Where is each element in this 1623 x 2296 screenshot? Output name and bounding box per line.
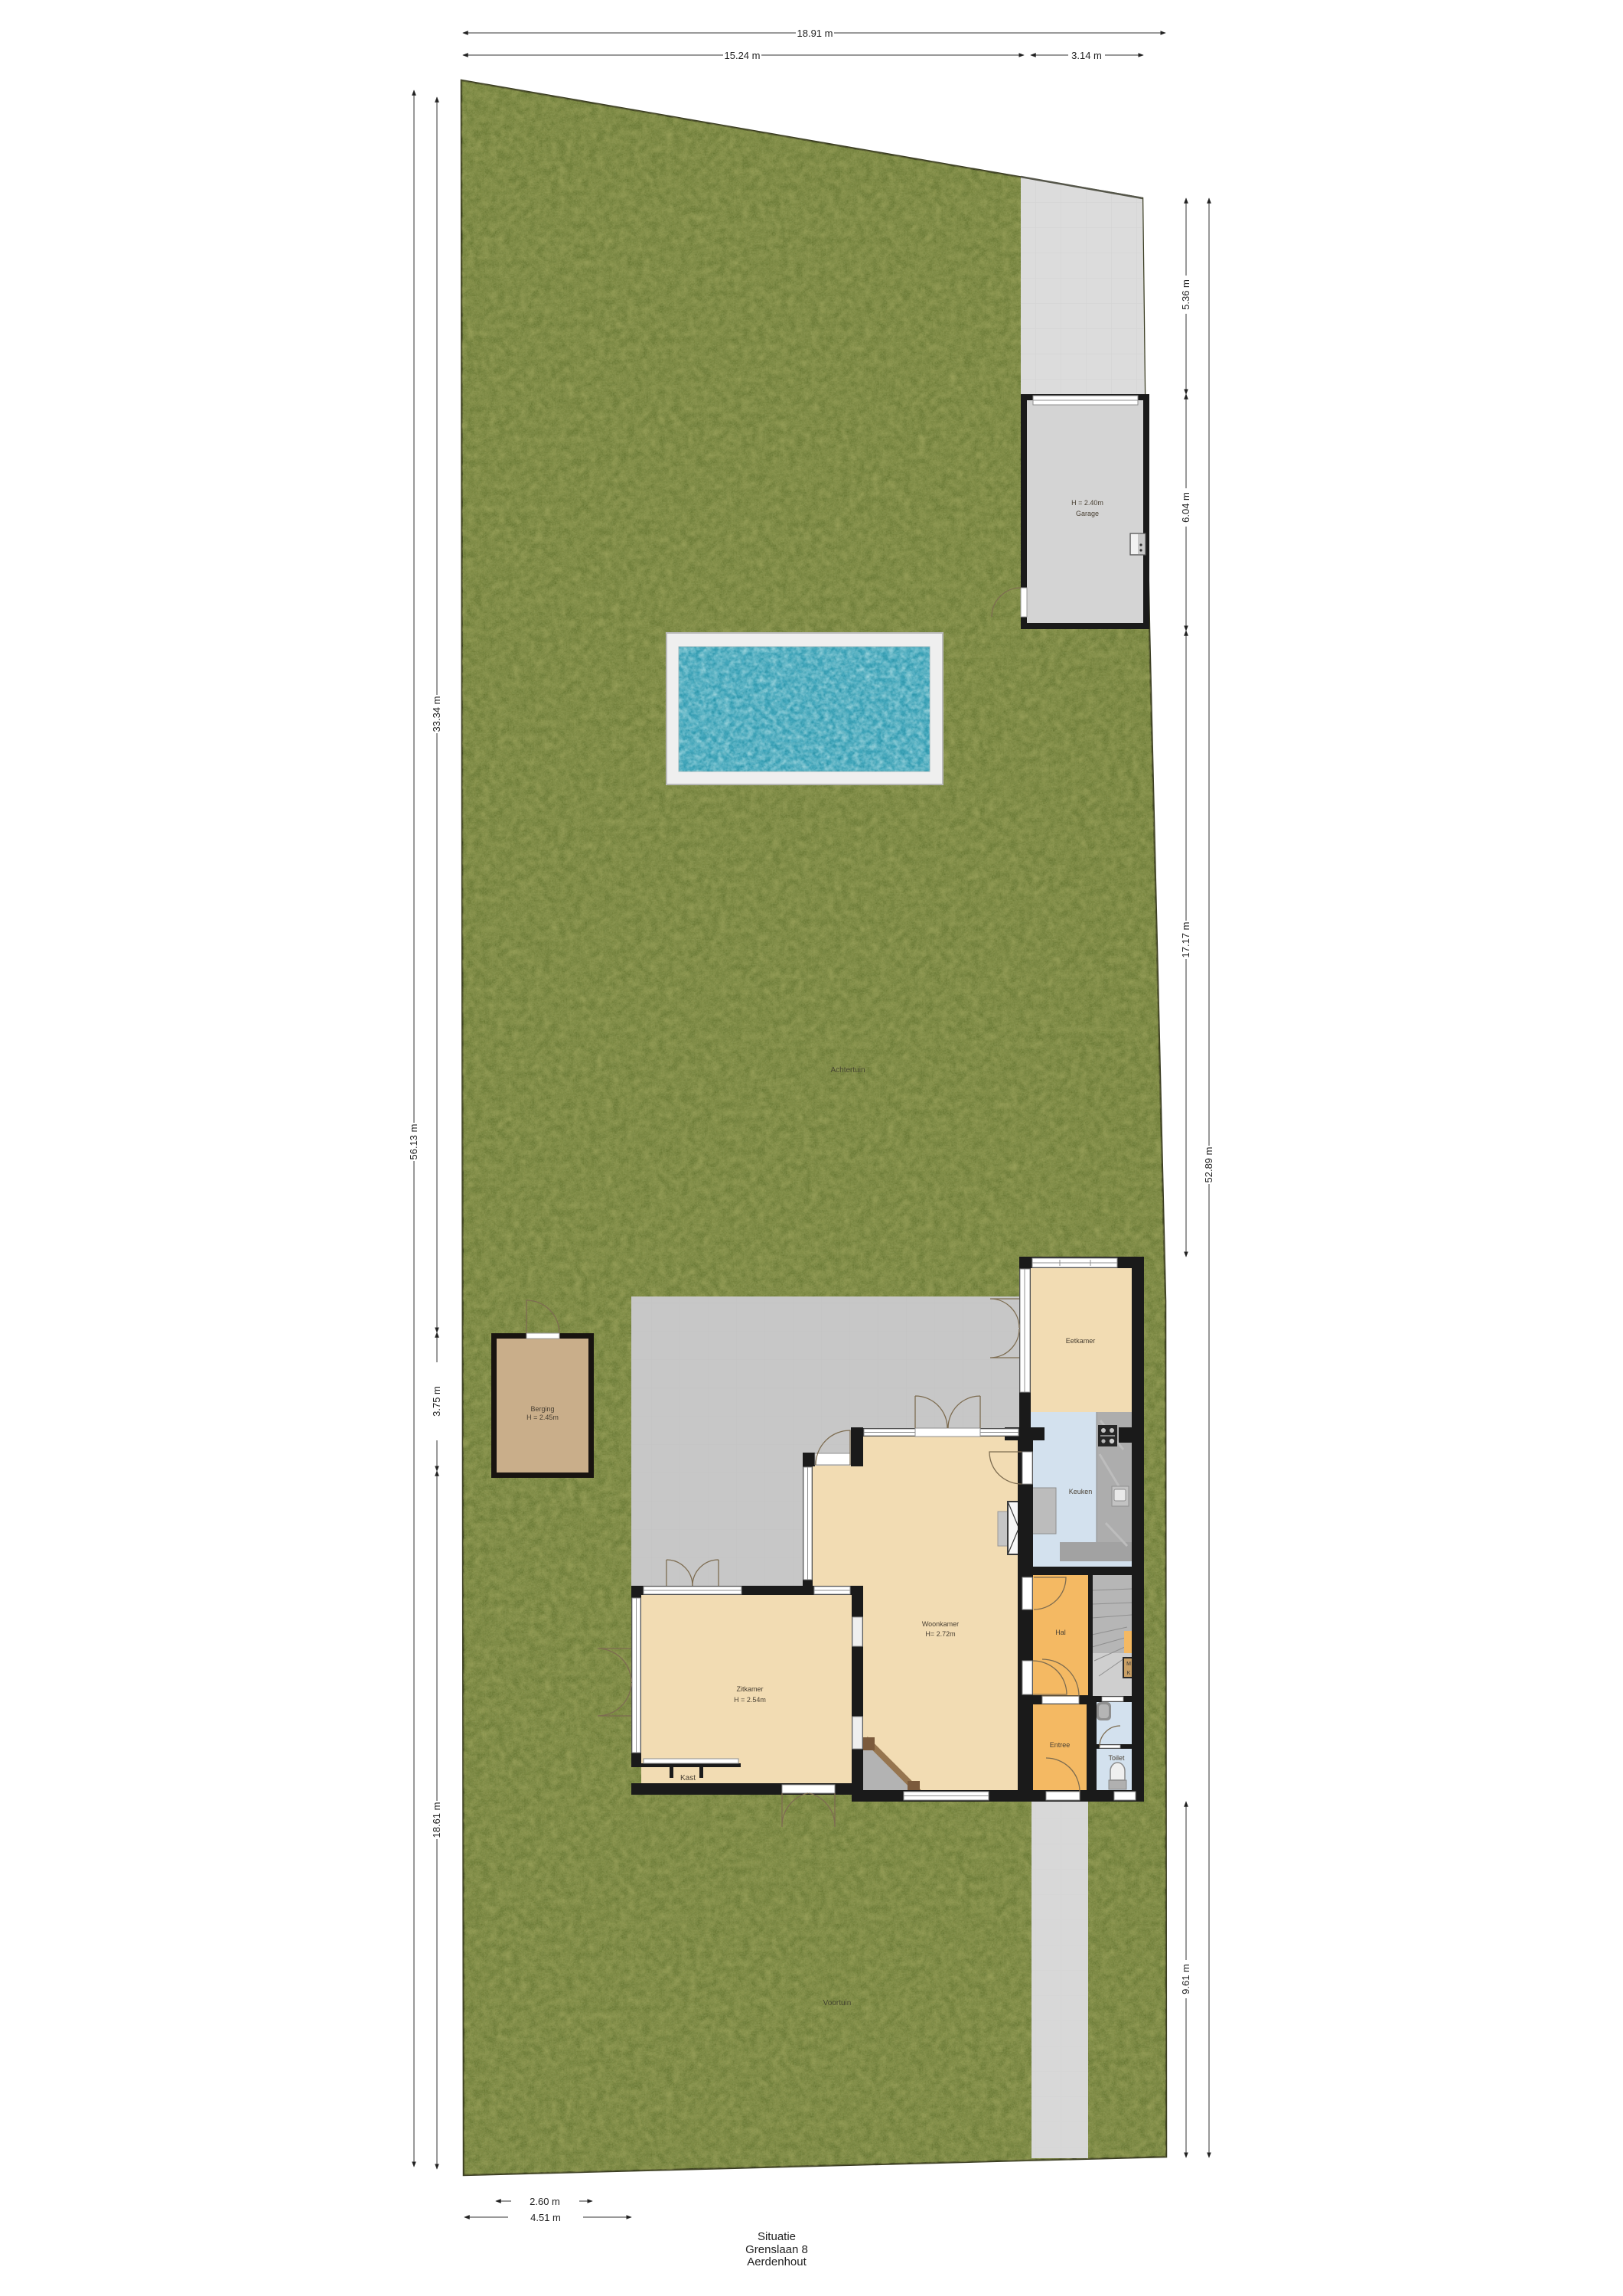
svg-text:Berging: Berging (530, 1405, 554, 1413)
svg-text:Woonkamer: Woonkamer (922, 1620, 959, 1628)
svg-text:15.24 m: 15.24 m (725, 50, 761, 61)
svg-text:Hal: Hal (1055, 1629, 1066, 1636)
svg-text:Entree: Entree (1050, 1741, 1071, 1749)
svg-text:Grenslaan 8: Grenslaan 8 (745, 2243, 808, 2256)
svg-text:Keuken: Keuken (1069, 1488, 1093, 1495)
svg-text:K: K (1127, 1671, 1131, 1676)
svg-text:H = 2.40m: H = 2.40m (1071, 499, 1103, 507)
svg-text:Achtertuin: Achtertuin (830, 1066, 865, 1075)
svg-text:M: M (1126, 1662, 1131, 1667)
svg-text:33.34 m: 33.34 m (431, 696, 442, 732)
svg-text:Situatie: Situatie (758, 2230, 796, 2243)
svg-text:3.14 m: 3.14 m (1071, 50, 1102, 61)
svg-text:6.04 m: 6.04 m (1180, 492, 1191, 523)
svg-text:2.60 m: 2.60 m (530, 2196, 560, 2207)
svg-text:H = 2.54m: H = 2.54m (734, 1696, 766, 1704)
svg-text:52.89 m: 52.89 m (1203, 1147, 1214, 1183)
svg-text:18.61 m: 18.61 m (431, 1802, 442, 1838)
svg-text:Kast: Kast (680, 1774, 696, 1782)
svg-text:56.13 m: 56.13 m (408, 1124, 419, 1160)
svg-text:Eetkamer: Eetkamer (1066, 1337, 1096, 1345)
svg-text:17.17 m: 17.17 m (1180, 922, 1191, 958)
svg-text:H = 2.45m: H = 2.45m (526, 1414, 559, 1421)
svg-text:5.36 m: 5.36 m (1180, 279, 1191, 310)
svg-text:Voortuin: Voortuin (823, 1999, 852, 2007)
svg-text:Zitkamer: Zitkamer (736, 1685, 763, 1693)
svg-text:18.91 m: 18.91 m (797, 28, 833, 39)
svg-text:Aerdenhout: Aerdenhout (747, 2255, 807, 2268)
svg-text:9.61 m: 9.61 m (1180, 1964, 1191, 1994)
svg-text:3.75 m: 3.75 m (431, 1386, 442, 1417)
svg-text:Garage: Garage (1076, 510, 1099, 517)
svg-text:Toilet: Toilet (1108, 1754, 1125, 1762)
svg-text:4.51 m: 4.51 m (530, 2212, 561, 2223)
svg-text:H= 2.72m: H= 2.72m (925, 1630, 955, 1638)
